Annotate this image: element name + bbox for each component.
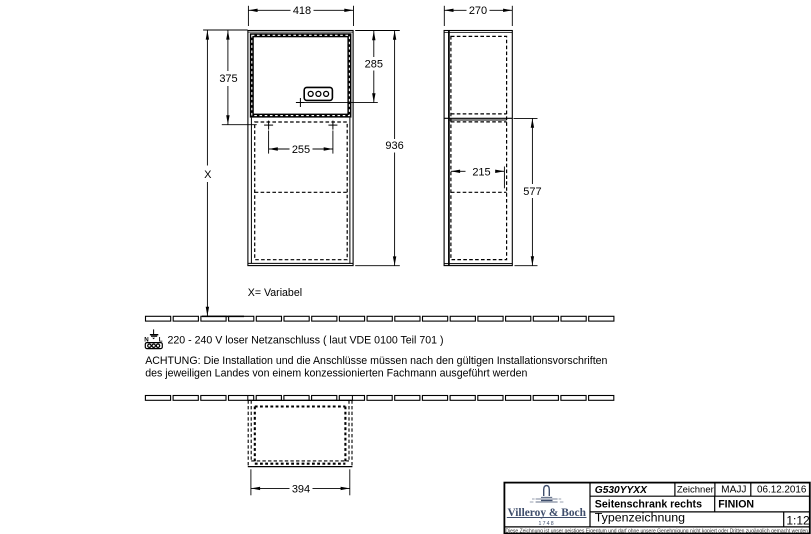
svg-text:215: 215 <box>472 166 490 178</box>
svg-text:X: X <box>204 169 212 181</box>
svg-text:936: 936 <box>385 140 403 152</box>
svg-text:1748: 1748 <box>539 521 555 527</box>
svg-text:418: 418 <box>293 5 311 17</box>
svg-text:285: 285 <box>365 58 383 70</box>
svg-text:MAJJ: MAJJ <box>721 485 746 496</box>
svg-text:394: 394 <box>292 483 310 495</box>
svg-text:270: 270 <box>469 5 487 17</box>
svg-text:Zeichner: Zeichner <box>677 485 714 496</box>
svg-text:375: 375 <box>219 73 237 85</box>
svg-text:Seitenschrank rechts: Seitenschrank rechts <box>595 499 702 511</box>
svg-text:220 - 240 V loser Netzanschlus: 220 - 240 V loser Netzanschluss ( laut V… <box>168 335 444 347</box>
svg-text:255: 255 <box>292 144 310 156</box>
svg-text:G530YYXX: G530YYXX <box>595 485 648 496</box>
svg-text:577: 577 <box>523 186 541 198</box>
svg-text:1:12: 1:12 <box>786 514 810 528</box>
svg-text:ACHTUNG: Die Installation und: ACHTUNG: Die Installation und die Anschl… <box>145 355 607 367</box>
svg-text:FINION: FINION <box>718 499 754 511</box>
svg-text:Diese Zeichnung ist unser geis: Diese Zeichnung ist unser geistiges Eige… <box>505 529 809 534</box>
svg-text:06.12.2016: 06.12.2016 <box>757 485 807 496</box>
svg-text:Villeroy & Boch: Villeroy & Boch <box>507 507 586 519</box>
svg-text:des jeweiligen Landes von eine: des jeweiligen Landes von einem konzessi… <box>145 367 527 379</box>
svg-text:X= Variabel: X= Variabel <box>248 287 302 299</box>
svg-text:Typenzeichnung: Typenzeichnung <box>595 511 685 525</box>
